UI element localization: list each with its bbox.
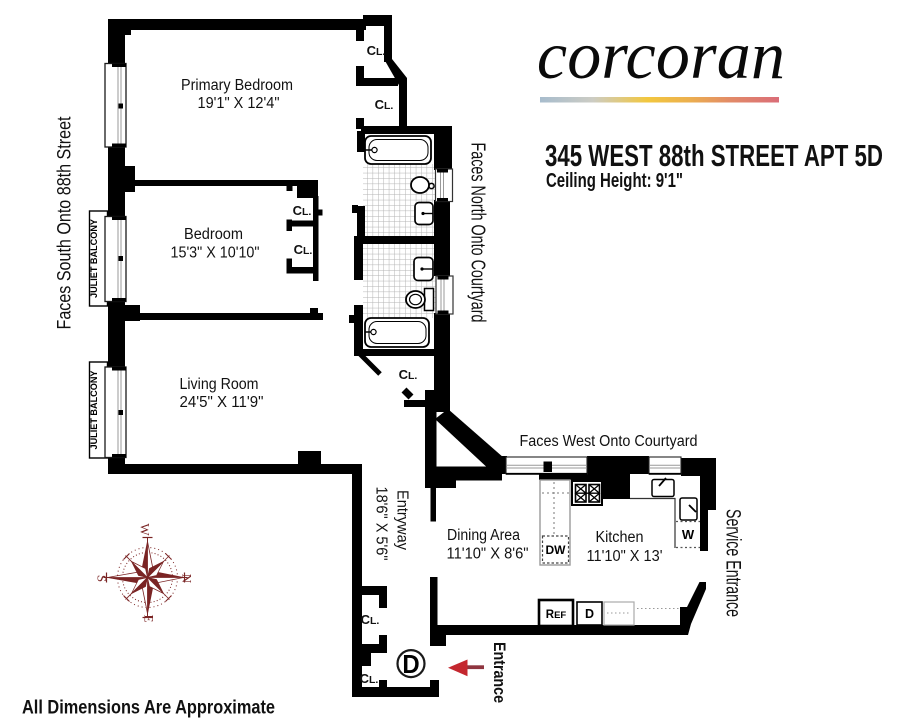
- svg-text:Living Room: Living Room: [180, 376, 259, 393]
- svg-text:Kitchen: Kitchen: [596, 529, 644, 546]
- svg-text:15'3" X 10'10": 15'3" X 10'10": [171, 245, 260, 262]
- svg-text:D: D: [402, 650, 419, 679]
- svg-text:D: D: [585, 607, 594, 621]
- svg-text:W: W: [138, 523, 153, 536]
- svg-text:Entryway: Entryway: [394, 490, 411, 550]
- svg-text:REF: REF: [546, 609, 567, 621]
- svg-text:CL.: CL.: [367, 43, 386, 58]
- svg-text:CL.: CL.: [360, 671, 379, 686]
- svg-text:11'10" X 8'6": 11'10" X 8'6": [447, 546, 529, 563]
- svg-text:Faces North Onto Courtyard: Faces North Onto Courtyard: [467, 143, 489, 323]
- svg-text:CL.: CL.: [294, 242, 313, 257]
- svg-text:corcoran: corcoran: [537, 17, 785, 93]
- svg-text:CL.: CL.: [293, 203, 312, 218]
- svg-text:S: S: [95, 575, 110, 582]
- svg-text:Ceiling Height: 9'1": Ceiling Height: 9'1": [546, 170, 683, 192]
- svg-text:Dining Area: Dining Area: [447, 527, 520, 544]
- svg-text:CL.: CL.: [361, 612, 380, 627]
- svg-text:11'10" X 13': 11'10" X 13': [587, 548, 663, 565]
- svg-text:19'1" X 12'4": 19'1" X 12'4": [198, 95, 280, 112]
- svg-text:345 WEST 88th STREET APT 5D: 345 WEST 88th STREET APT 5D: [545, 138, 883, 173]
- svg-text:W: W: [682, 527, 695, 542]
- svg-text:Service Entrance: Service Entrance: [722, 509, 745, 617]
- svg-text:Primary Bedroom: Primary Bedroom: [181, 77, 293, 94]
- svg-text:Entrance: Entrance: [490, 642, 509, 703]
- svg-text:Faces West Onto Courtyard: Faces West Onto Courtyard: [520, 433, 698, 450]
- svg-text:E: E: [142, 615, 157, 623]
- svg-text:DW: DW: [546, 543, 567, 557]
- svg-text:CL.: CL.: [375, 97, 394, 112]
- svg-text:JULIET BALCONY: JULIET BALCONY: [89, 219, 99, 298]
- svg-text:Bedroom: Bedroom: [184, 226, 243, 243]
- svg-text:CL.: CL.: [399, 367, 418, 382]
- svg-text:N: N: [180, 574, 195, 584]
- svg-text:Faces South Onto 88th Street: Faces South Onto 88th Street: [55, 116, 76, 330]
- svg-text:All Dimensions Are Approximate: All Dimensions Are Approximate: [22, 697, 275, 719]
- svg-text:24'5" X 11'9": 24'5" X 11'9": [180, 394, 264, 411]
- svg-text:JULIET BALCONY: JULIET BALCONY: [89, 370, 99, 449]
- svg-text:18'6" X 5'6": 18'6" X 5'6": [373, 487, 390, 561]
